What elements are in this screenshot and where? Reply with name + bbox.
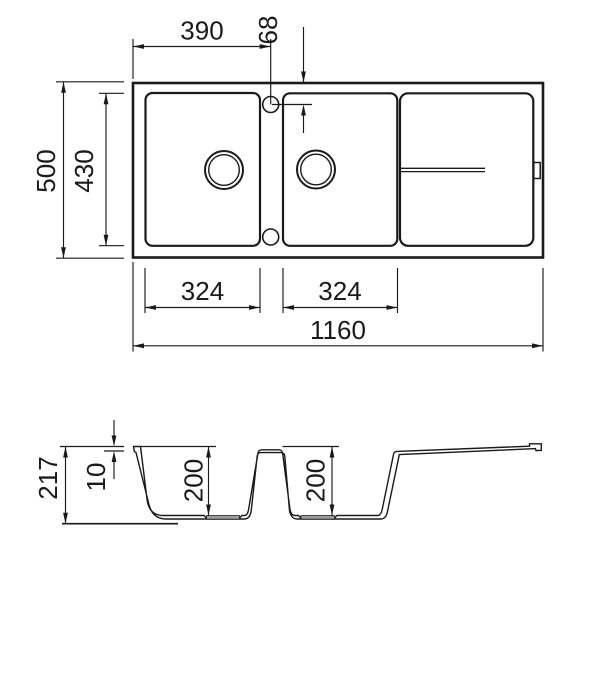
- dim-label-68: 68: [253, 16, 283, 45]
- dim-label-200-right: 200: [301, 459, 331, 502]
- left-drain-recess: [207, 516, 240, 520]
- sink-technical-drawing: 390 68 500 430: [0, 0, 600, 689]
- middle-drain-recess: [301, 516, 335, 520]
- overflow-notch: [534, 163, 540, 179]
- dim-right-bowl-depth: 200: [283, 447, 340, 516]
- dim-label-500: 500: [31, 149, 61, 192]
- drainboard: [400, 93, 533, 246]
- left-drain-inner: [209, 155, 240, 186]
- technical-drawing-page: 390 68 500 430: [0, 0, 600, 689]
- dim-rim-height: 10: [81, 420, 124, 491]
- dim-label-324-left: 324: [181, 276, 224, 306]
- dim-label-200-left: 200: [179, 459, 209, 502]
- dim-left-bowl-depth: 200: [140, 447, 216, 516]
- section-dimensions: 217 10 200 200: [33, 420, 339, 524]
- dim-label-1160: 1160: [310, 315, 366, 345]
- dim-label-217: 217: [33, 456, 63, 499]
- dim-label-324-right: 324: [318, 276, 361, 306]
- dim-inner-depth: 430: [69, 93, 124, 245]
- dim-label-10: 10: [81, 463, 111, 492]
- middle-drain-inner: [301, 154, 332, 185]
- dim-right-bowl-width: 324: [283, 268, 398, 313]
- tap-hole-bottom: [263, 229, 279, 245]
- dim-label-390: 390: [180, 16, 223, 46]
- dim-left-bowl-width: 324: [145, 268, 260, 313]
- dim-label-430: 430: [69, 149, 99, 192]
- top-view: [133, 83, 543, 258]
